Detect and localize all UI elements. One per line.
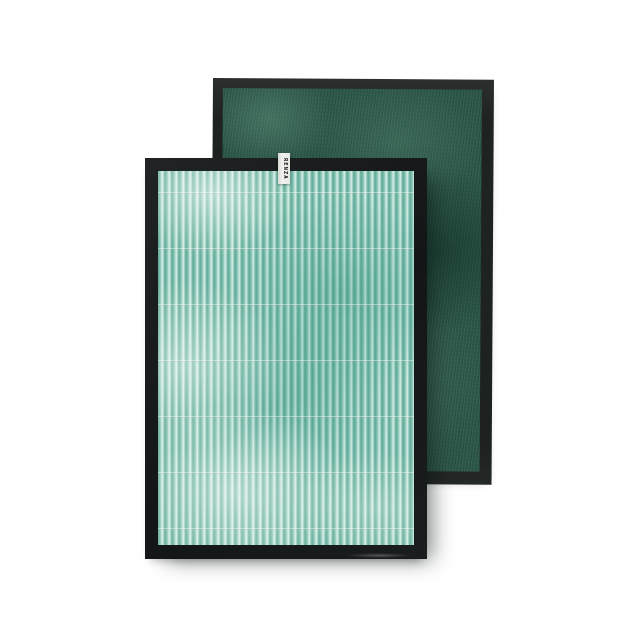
brand-tag-label: RENZA: [281, 158, 287, 180]
pleated-filter-media: [158, 171, 414, 545]
glue-line: [158, 248, 414, 250]
glue-line: [158, 472, 414, 474]
glue-line: [158, 192, 414, 194]
glue-line: [158, 416, 414, 418]
glue-line: [158, 304, 414, 306]
brand-tag: RENZA: [278, 153, 290, 184]
glue-line: [158, 360, 414, 362]
pleated-filter-panel: [145, 158, 427, 559]
product-photo: RENZA: [0, 0, 640, 640]
glue-line: [158, 528, 414, 530]
